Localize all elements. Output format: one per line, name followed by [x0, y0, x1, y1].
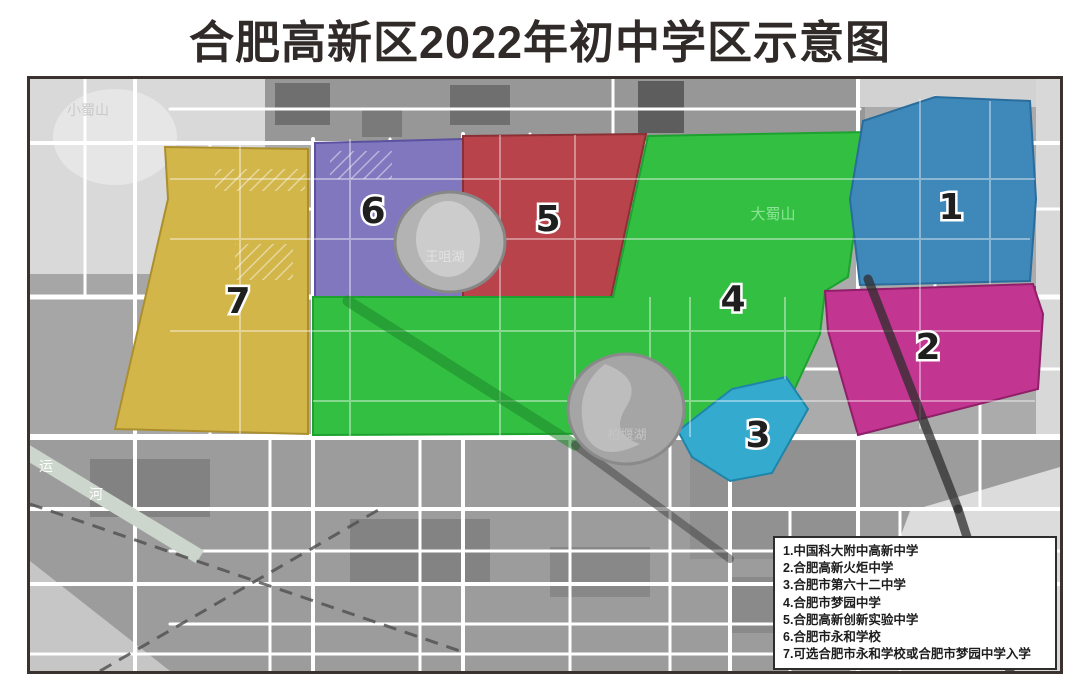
dashushan-label: 大蜀山: [750, 206, 795, 223]
zone-6-number: 6: [360, 191, 385, 232]
legend-item-5: 5.合肥高新创新实验中学: [783, 612, 1047, 629]
legend-item-7: 7.可选合肥市永和学校或合肥市梦园中学入学: [783, 646, 1047, 663]
zone-1-number: 1: [938, 187, 963, 228]
wangzuihu-label: 王咀湖: [425, 249, 464, 264]
canal-label-1: 运: [39, 458, 53, 474]
zone-7-number: 7: [225, 281, 250, 322]
canal-label-2: 河: [89, 486, 103, 502]
school-district-map: 小蜀山 大蜀山 王咀湖 柏堰湖 运 河 1 2 3 4 5 6 7 1.中国科大…: [27, 76, 1063, 674]
zone-4-number: 4: [720, 279, 745, 320]
zone-2-number: 2: [915, 327, 940, 368]
zone-5-number: 5: [535, 199, 560, 240]
legend-item-1: 1.中国科大附中高新中学: [783, 543, 1047, 560]
legend-item-3: 3.合肥市第六十二中学: [783, 577, 1047, 594]
page-title: 合肥高新区2022年初中学区示意图: [0, 6, 1080, 71]
zone-3-number: 3: [745, 415, 770, 456]
baiyanhu-label: 柏堰湖: [607, 427, 646, 442]
legend-item-6: 6.合肥市永和学校: [783, 629, 1047, 646]
legend: 1.中国科大附中高新中学 2.合肥高新火炬中学 3.合肥市第六十二中学 4.合肥…: [773, 536, 1057, 670]
legend-item-2: 2.合肥高新火炬中学: [783, 560, 1047, 577]
legend-item-4: 4.合肥市梦园中学: [783, 595, 1047, 612]
xiaoshushan-label: 小蜀山: [67, 102, 109, 118]
